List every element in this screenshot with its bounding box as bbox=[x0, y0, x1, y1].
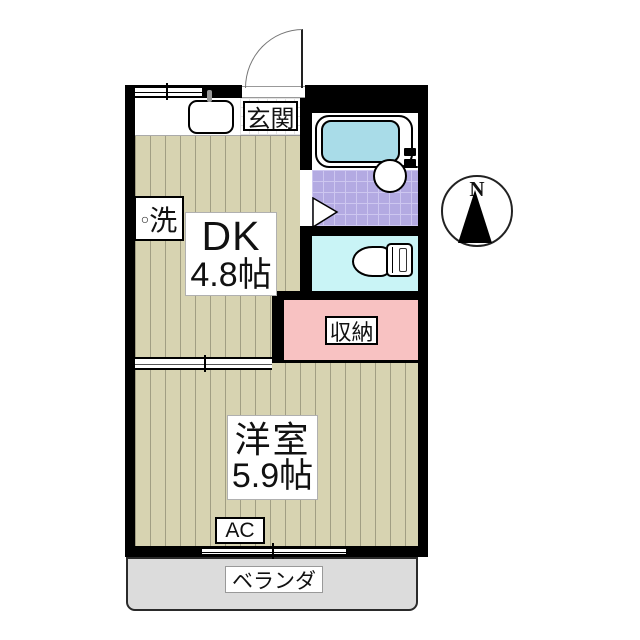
western-room-name: 洋室 bbox=[234, 421, 310, 459]
dk-name: DK bbox=[202, 215, 261, 258]
western-room-size: 5.9帖 bbox=[232, 459, 313, 495]
bathtub-inner bbox=[321, 120, 400, 163]
entrance-door-swing-icon bbox=[245, 29, 303, 88]
toilet-tank bbox=[386, 243, 413, 277]
ac-label: AC bbox=[215, 517, 265, 544]
window-bottom-tick bbox=[272, 543, 274, 559]
washer-kanji: 洗 bbox=[149, 199, 177, 239]
entrance-label: 玄関 bbox=[243, 101, 298, 131]
dk-size: 4.8帖 bbox=[190, 258, 271, 294]
window-top-icon bbox=[135, 86, 202, 98]
kitchen-sink-icon bbox=[188, 100, 234, 134]
washer-label: ○洗 bbox=[134, 196, 184, 241]
veranda-label: ベランダ bbox=[225, 566, 323, 593]
window-bottom-icon bbox=[202, 547, 346, 556]
dk-room-label: DK 4.8帖 bbox=[185, 212, 277, 296]
bath-faucet-knob bbox=[404, 148, 416, 156]
washbasin-icon bbox=[373, 159, 407, 193]
sliding-door-tick bbox=[204, 355, 206, 372]
wall-bath-divider-upper bbox=[300, 98, 312, 170]
north-compass-icon: N bbox=[441, 175, 513, 247]
wall-top-right bbox=[305, 85, 428, 113]
kitchen-faucet-icon bbox=[207, 90, 212, 102]
door-triangle-icon bbox=[312, 197, 339, 228]
wall-storage-left bbox=[272, 291, 284, 363]
wall-toilet-divider bbox=[300, 236, 312, 291]
washer-circle-icon: ○ bbox=[141, 211, 149, 227]
storage-label: 収納 bbox=[325, 316, 378, 345]
western-room-label: 洋室 5.9帖 bbox=[227, 415, 318, 500]
storage-bottom-line bbox=[284, 360, 418, 363]
wall-toilet-storage bbox=[284, 291, 418, 300]
floor-plan: 玄関 ○洗 DK 4.8帖 収納 洋室 5.9帖 AC ベランダ N bbox=[0, 0, 640, 640]
wall-left bbox=[125, 85, 135, 557]
window-top-tick bbox=[166, 83, 168, 100]
north-arrow-icon bbox=[443, 177, 511, 245]
wall-right bbox=[418, 85, 428, 557]
